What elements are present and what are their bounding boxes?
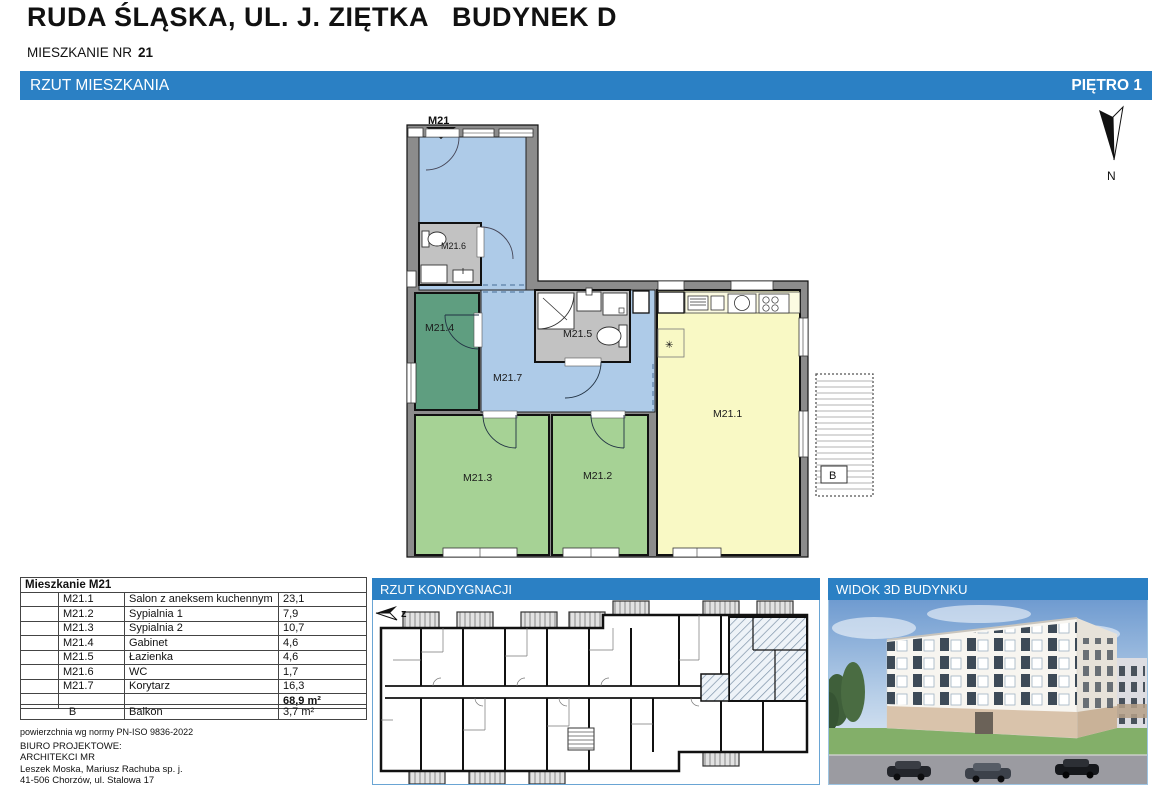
room-label-m21-1: M21.1 bbox=[713, 408, 742, 420]
apartment-number: 21 bbox=[138, 45, 153, 60]
table-row: M21.4Gabinet4,6 bbox=[21, 636, 367, 651]
floor-badge: PIĘTRO 1 bbox=[1071, 77, 1142, 95]
vent-symbol: ✳ bbox=[665, 340, 673, 351]
office-line: BIURO PROJEKTOWE: bbox=[20, 741, 183, 752]
shaft bbox=[633, 291, 649, 313]
balcony: B bbox=[816, 374, 873, 496]
floor-plan-panel: RZUT KONDYGNACJI bbox=[372, 578, 820, 785]
orientation-arrow-icon: z bbox=[376, 606, 407, 620]
area-table-title: Mieszkanie M21 bbox=[21, 578, 367, 593]
area-table: Mieszkanie M21 M21.1Salon z aneksem kuch… bbox=[20, 577, 367, 709]
building-floorplan: z bbox=[373, 600, 819, 785]
office-line: ARCHITEKCI MR bbox=[20, 752, 183, 763]
norm-note: powierzchnia wg normy PN-ISO 9836-2022 bbox=[20, 727, 193, 737]
room-sypialnia1: M21.2 bbox=[552, 411, 648, 555]
table-row: M21.7Korytarz16,3 bbox=[21, 679, 367, 694]
north-arrow-icon: N bbox=[1085, 105, 1140, 195]
room-label-m21-3: M21.3 bbox=[463, 472, 492, 484]
room-label-m21-2: M21.2 bbox=[583, 470, 612, 482]
view3d-panel: WIDOK 3D BUDYNKU bbox=[828, 578, 1148, 785]
table-row: M21.6WC1,7 bbox=[21, 665, 367, 680]
balcony-plan-label: B bbox=[829, 470, 836, 482]
office-line: 41-506 Chorzów, ul. Stalowa 17 bbox=[20, 775, 183, 785]
floor-plan-panel-header: RZUT KONDYGNACJI bbox=[372, 578, 820, 600]
room-label-m21-7: M21.7 bbox=[493, 372, 522, 384]
room-label-m21-6: M21.6 bbox=[441, 241, 466, 251]
room-sypialnia2: M21.3 bbox=[415, 411, 549, 555]
entrance-label: M21 bbox=[428, 115, 449, 127]
page-title: RUDA ŚLĄSKA, UL. J. ZIĘTKA BUDYNEK D bbox=[27, 2, 617, 33]
plan-header-left: RZUT MIESZKANIA bbox=[30, 77, 169, 95]
washer-icon bbox=[603, 293, 627, 315]
room-gabinet: M21.4 bbox=[415, 293, 482, 410]
kitchen-counter bbox=[685, 292, 800, 313]
floorplan-document: RUDA ŚLĄSKA, UL. J. ZIĘTKA BUDYNEK D MIE… bbox=[0, 0, 1170, 785]
balcony-table: B Balkon 3,7 m² bbox=[20, 704, 367, 720]
table-row: M21.3Sypialnia 210,7 bbox=[21, 621, 367, 636]
room-salon: ✳ M21.1 bbox=[657, 290, 800, 555]
building-3d-render bbox=[829, 600, 1147, 785]
entrance-door bbox=[975, 712, 993, 734]
office-line: Leszek Moska, Mariusz Rachuba sp. j. bbox=[20, 764, 183, 775]
apartment-subtitle: MIESZKANIE NR21 bbox=[27, 45, 153, 60]
floor-plan-panel-title: RZUT KONDYGNACJI bbox=[380, 582, 512, 597]
apartment-floorplan: B M21.7 M21.6 M21.4 bbox=[395, 115, 875, 565]
fridge-icon bbox=[688, 296, 708, 310]
apartment-label: MIESZKANIE NR bbox=[27, 45, 132, 60]
room-label-m21-4: M21.4 bbox=[425, 322, 454, 334]
table-row: M21.5Łazienka4,6 bbox=[21, 650, 367, 665]
room-label-m21-5: M21.5 bbox=[563, 328, 592, 340]
north-label: N bbox=[1107, 169, 1116, 183]
view3d-panel-title: WIDOK 3D BUDYNKU bbox=[836, 582, 967, 597]
view3d-panel-header: WIDOK 3D BUDYNKU bbox=[828, 578, 1148, 600]
design-office-info: BIURO PROJEKTOWE: ARCHITEKCI MR Leszek M… bbox=[20, 741, 183, 785]
table-row: M21.2Sypialnia 17,9 bbox=[21, 607, 367, 622]
table-row: B Balkon 3,7 m² bbox=[21, 705, 367, 720]
stairwell bbox=[568, 728, 594, 750]
table-row: M21.1Salon z aneksem kuchennym23,1 bbox=[21, 592, 367, 607]
orientation-label: z bbox=[401, 608, 407, 620]
main-building bbox=[887, 618, 1117, 738]
plan-header-bar: RZUT MIESZKANIA PIĘTRO 1 bbox=[20, 71, 1152, 100]
